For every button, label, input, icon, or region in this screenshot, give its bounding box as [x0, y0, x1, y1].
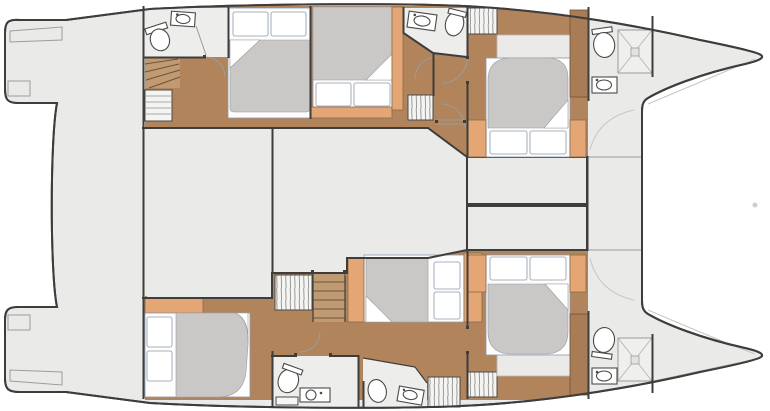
- port-shelf-wardrobe: [145, 90, 172, 121]
- port-mid-cabin-bed: [310, 7, 403, 118]
- locker: [570, 10, 588, 97]
- stbd-wardrobe-1: [428, 377, 460, 407]
- catamaran-floor-plan: [0, 0, 770, 411]
- nightstand: [348, 258, 364, 322]
- stbd-hanging-wardrobe: [275, 275, 312, 310]
- port-companionway-stairs: [145, 58, 180, 88]
- port-wardrobe-mid: [408, 95, 433, 120]
- forward-seat-1: [467, 157, 587, 204]
- floor-plan-svg: [0, 0, 770, 411]
- bench: [276, 397, 298, 405]
- stbd-forward-cabin: [468, 255, 586, 355]
- washbasin: [171, 11, 196, 27]
- nightstand: [468, 255, 486, 292]
- shower-tray: [618, 30, 652, 73]
- port-aft-cabin-bed: [228, 8, 310, 118]
- nightstand: [468, 120, 486, 157]
- trampoline-edge-lines: [648, 59, 755, 354]
- washbasin-counter: [300, 388, 330, 402]
- forward-seat-2: [467, 206, 587, 250]
- locker: [570, 314, 588, 395]
- port-forward-cabin: [468, 58, 586, 157]
- nightstand: [570, 255, 586, 292]
- stbd-wardrobe-2: [468, 372, 497, 397]
- stbd-aft-cabin-bed: [145, 298, 250, 397]
- stbd-mid-cabin-bed: [348, 253, 482, 322]
- nightstand: [570, 120, 586, 157]
- sideboard: [145, 298, 203, 313]
- port-wardrobe-fore: [468, 8, 497, 34]
- forestay-fitting: [753, 203, 758, 208]
- washbasin: [592, 368, 617, 384]
- shower-tray: [618, 338, 652, 381]
- port-mid-headboard: [392, 7, 403, 110]
- washbasin: [592, 77, 617, 93]
- washbasin: [407, 11, 437, 31]
